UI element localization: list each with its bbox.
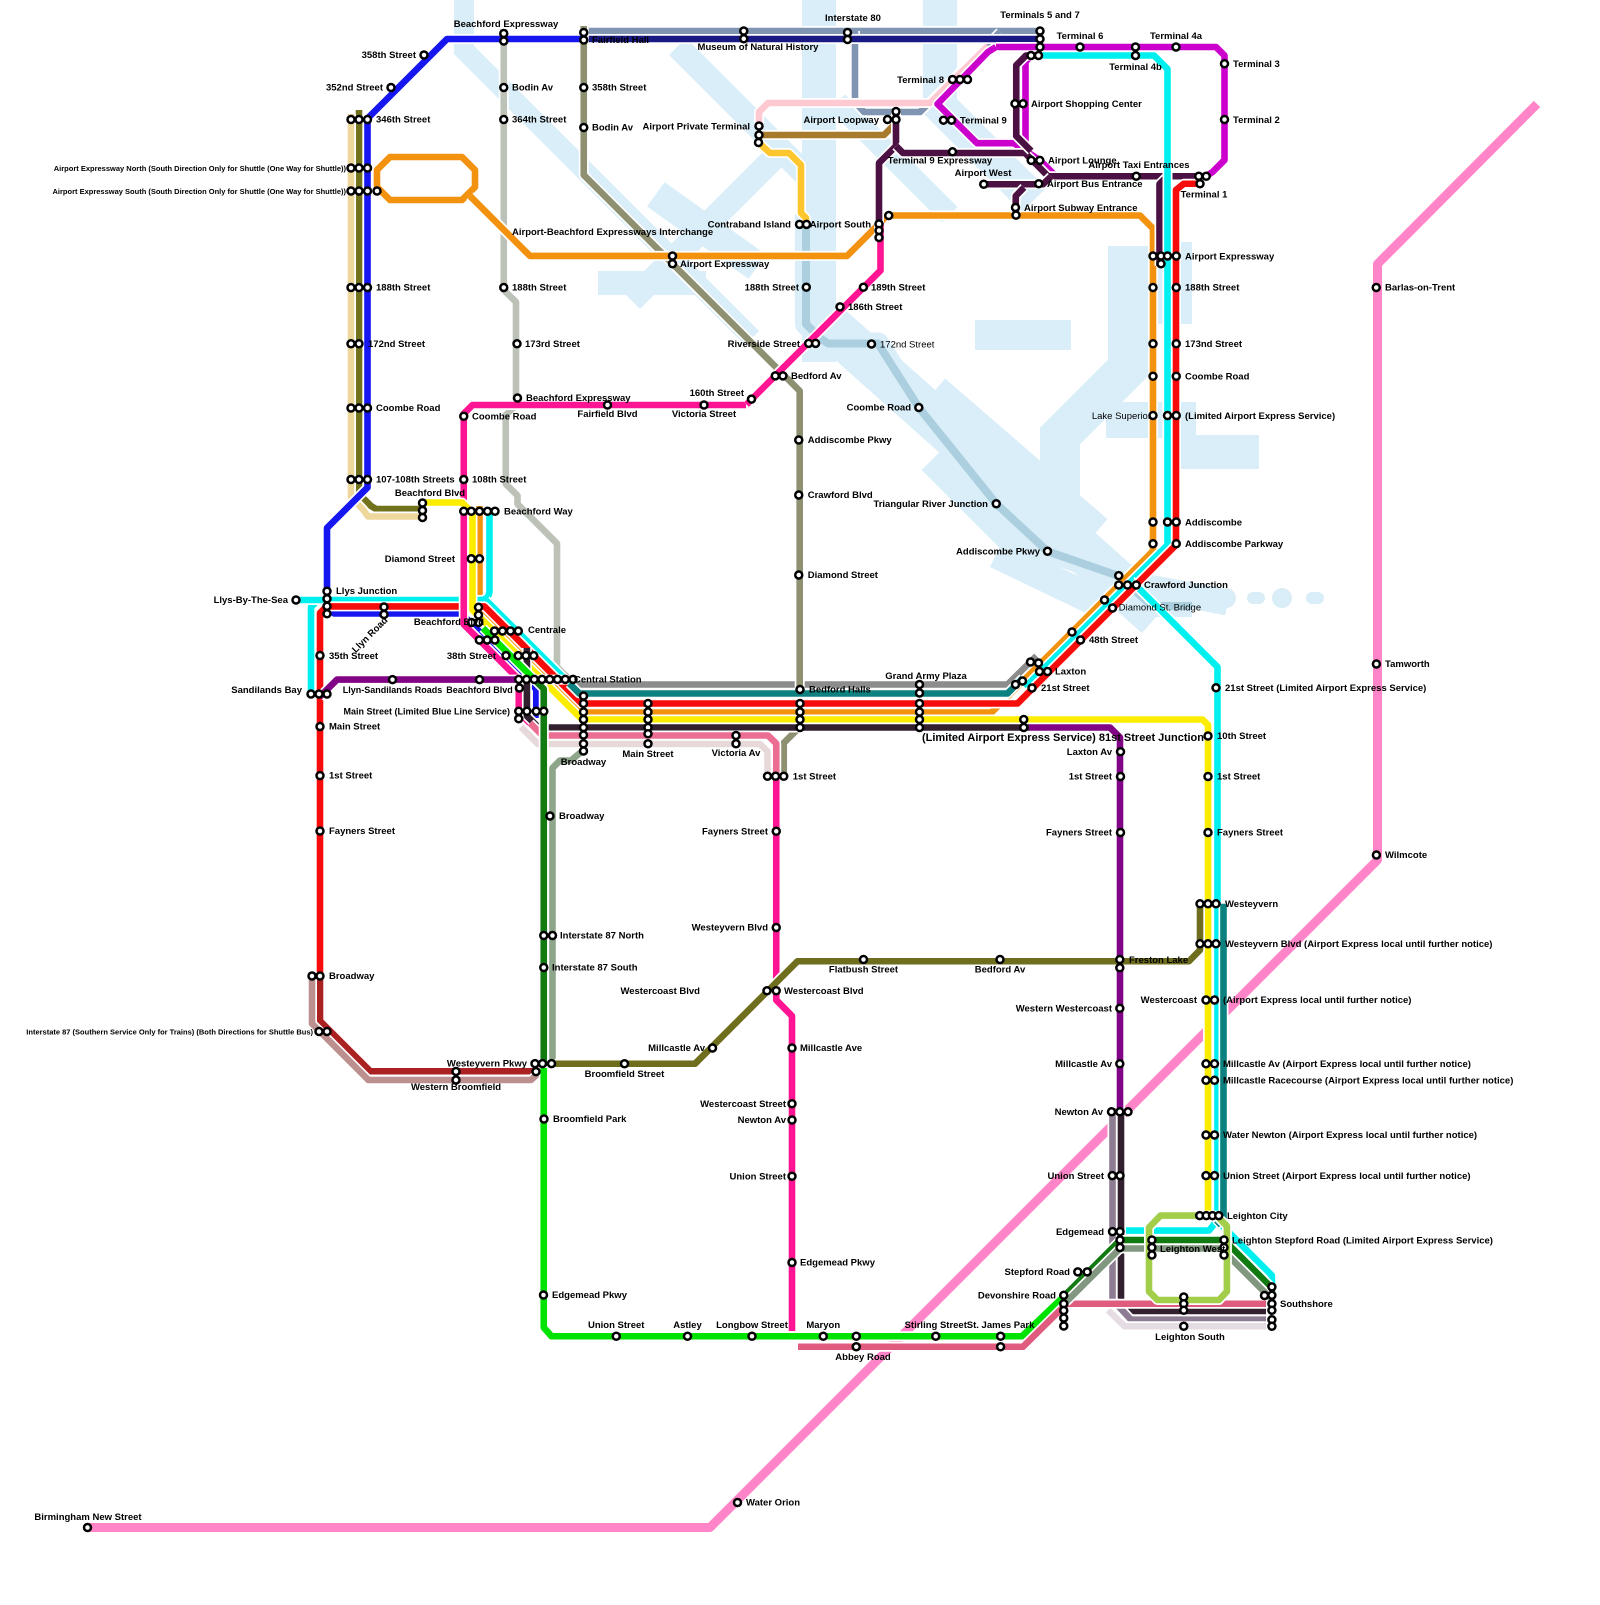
svg-text:Flatbush Street: Flatbush Street (829, 965, 899, 976)
svg-text:Coombe Road: Coombe Road (376, 403, 441, 414)
svg-text:21st Street (Limited Airport E: 21st Street (Limited Airport Express Ser… (1225, 683, 1426, 694)
svg-text:173nd Street: 173nd Street (1185, 339, 1243, 350)
svg-text:Barlas-on-Trent: Barlas-on-Trent (1385, 283, 1456, 294)
svg-text:Airport Bus Entrance: Airport Bus Entrance (1047, 179, 1143, 190)
svg-text:Interstate 80: Interstate 80 (825, 13, 881, 24)
svg-text:Bodin Av: Bodin Av (512, 83, 554, 94)
svg-text:Crawford Blvd: Crawford Blvd (808, 490, 873, 501)
svg-text:Millcastle Av: Millcastle Av (648, 1043, 706, 1054)
svg-text:Triangular River Junction: Triangular River Junction (873, 499, 988, 510)
svg-text:1st Street: 1st Street (329, 771, 373, 782)
svg-text:Wilmcote: Wilmcote (1385, 850, 1427, 861)
svg-text:Beachford Expressway: Beachford Expressway (454, 19, 559, 30)
svg-text:Sandilands Bay: Sandilands Bay (231, 685, 302, 696)
svg-text:358th Street: 358th Street (362, 50, 417, 61)
svg-text:108th Street: 108th Street (472, 475, 527, 486)
svg-text:Broadway: Broadway (329, 971, 375, 982)
svg-text:48th Street: 48th Street (1089, 635, 1139, 646)
svg-text:10th Street: 10th Street (1217, 731, 1267, 742)
svg-text:Coombe Road: Coombe Road (847, 403, 912, 414)
svg-text:Interstate 87 North: Interstate 87 North (560, 931, 644, 942)
svg-text:Edgemead Pkwy: Edgemead Pkwy (552, 1290, 628, 1301)
svg-text:189th Street: 189th Street (871, 283, 926, 294)
svg-text:Union Street: Union Street (730, 1171, 787, 1182)
svg-text:21st Street: 21st Street (1041, 683, 1090, 694)
svg-text:172nd Street: 172nd Street (368, 339, 426, 350)
svg-text:Interstate 87 South: Interstate 87 South (552, 963, 638, 974)
svg-text:Terminal 1: Terminal 1 (1181, 190, 1229, 201)
svg-text:Museum of Natural History: Museum of Natural History (698, 42, 820, 53)
svg-text:Airport West: Airport West (955, 168, 1013, 179)
svg-text:107-108th Streets: 107-108th Streets (376, 475, 455, 486)
svg-text:Airport Expressway South (Sout: Airport Expressway South (South Directio… (53, 187, 347, 196)
svg-text:Airport Loopway: Airport Loopway (804, 115, 880, 126)
svg-text:Diamond St. Bridge: Diamond St. Bridge (1119, 603, 1201, 614)
svg-text:Westeyvern Blvd: Westeyvern Blvd (692, 923, 769, 934)
svg-text:Victoria Street: Victoria Street (672, 409, 737, 420)
svg-text:Bedford Halls: Bedford Halls (809, 685, 871, 696)
svg-text:Terminals 5 and 7: Terminals 5 and 7 (1000, 10, 1080, 21)
svg-text:Terminal 8: Terminal 8 (897, 75, 944, 86)
svg-text:Addiscombe Pkwy: Addiscombe Pkwy (808, 435, 893, 446)
svg-text:Interstate 87 (Southern Servic: Interstate 87 (Southern Service Only for… (26, 1028, 313, 1037)
svg-text:Fayners Street: Fayners Street (1217, 828, 1284, 839)
svg-text:Llys-By-The-Sea: Llys-By-The-Sea (214, 595, 289, 606)
svg-text:Contraband Island: Contraband Island (708, 220, 792, 231)
svg-text:358th Street: 358th Street (592, 83, 647, 94)
svg-text:Maryon: Maryon (806, 1320, 840, 1331)
svg-text:173rd Street: 173rd Street (525, 339, 581, 350)
svg-text:(Airport Express local until f: (Airport Express local until further not… (1223, 995, 1411, 1006)
svg-text:Longbow Street: Longbow Street (716, 1320, 789, 1331)
svg-text:Beachford Expressway: Beachford Expressway (526, 393, 631, 404)
svg-text:Terminal 3: Terminal 3 (1233, 59, 1280, 70)
svg-text:Fayners Street: Fayners Street (1046, 828, 1113, 839)
svg-text:38th Street: 38th Street (447, 651, 497, 662)
svg-text:188th Street: 188th Street (1185, 283, 1240, 294)
svg-text:Southshore: Southshore (1280, 1299, 1333, 1310)
svg-text:Airport Taxi Entrances: Airport Taxi Entrances (1088, 160, 1189, 171)
svg-text:1st Street: 1st Street (793, 771, 837, 782)
svg-text:Abbey Road: Abbey Road (835, 1352, 891, 1363)
svg-text:Birmingham New Street: Birmingham New Street (34, 1512, 142, 1523)
svg-text:Beachford Blvd: Beachford Blvd (395, 488, 465, 499)
svg-text:Coombe Road: Coombe Road (1185, 372, 1250, 383)
svg-text:Terminal 6: Terminal 6 (1057, 31, 1104, 42)
svg-text:Leighton Stepford Road (Limite: Leighton Stepford Road (Limited Airport … (1232, 1236, 1493, 1247)
svg-text:Fayners Street: Fayners Street (329, 826, 396, 837)
svg-text:Terminal 9 Expressway: Terminal 9 Expressway (888, 156, 993, 167)
svg-text:Diamond Street: Diamond Street (385, 554, 456, 565)
svg-text:Stepford Road: Stepford Road (1005, 1267, 1071, 1278)
svg-text:Crawford Junction: Crawford Junction (1144, 580, 1228, 591)
svg-text:Western Westercoast: Western Westercoast (1016, 1004, 1113, 1015)
svg-text:Beachford Way: Beachford Way (504, 507, 574, 518)
svg-text:Leighton City: Leighton City (1227, 1211, 1288, 1222)
svg-text:160th Street: 160th Street (690, 388, 745, 399)
svg-text:Laxton Av: Laxton Av (1067, 747, 1113, 758)
svg-text:Airport South: Airport South (810, 220, 871, 231)
svg-text:Victoria Av: Victoria Av (712, 748, 761, 759)
svg-text:188th Street: 188th Street (745, 283, 800, 294)
svg-text:Airport Shopping Center: Airport Shopping Center (1031, 99, 1142, 110)
svg-text:Newton Av: Newton Av (738, 1115, 787, 1126)
svg-text:Laxton: Laxton (1055, 667, 1086, 678)
svg-text:1st Street: 1st Street (1069, 772, 1113, 783)
svg-text:Union Street: Union Street (588, 1320, 645, 1331)
svg-text:Addiscombe: Addiscombe (1185, 518, 1242, 529)
svg-text:Edgemead: Edgemead (1056, 1227, 1104, 1238)
svg-text:Leighton West: Leighton West (1160, 1244, 1226, 1255)
svg-text:346th Street: 346th Street (376, 115, 431, 126)
svg-text:Llys Junction: Llys Junction (336, 586, 397, 597)
svg-text:Stirling Street: Stirling Street (905, 1320, 968, 1331)
svg-text:Bedford Av: Bedford Av (791, 371, 842, 382)
svg-text:Airport Expressway: Airport Expressway (680, 259, 770, 270)
svg-text:Addiscombe Parkway: Addiscombe Parkway (1185, 539, 1284, 550)
svg-text:Millcastle Racecourse (Airport: Millcastle Racecourse (Airport Express l… (1223, 1076, 1513, 1087)
svg-text:Diamond Street: Diamond Street (808, 570, 879, 581)
svg-text:Westeyvern: Westeyvern (1225, 899, 1278, 910)
svg-text:Devonshire Road: Devonshire Road (978, 1291, 1056, 1302)
svg-text:Astley: Astley (673, 1320, 702, 1331)
svg-text:Union Street: Union Street (1048, 1171, 1105, 1182)
svg-text:Westercoast Street: Westercoast Street (700, 1099, 787, 1110)
svg-text:Water Orion: Water Orion (746, 1498, 800, 1509)
svg-text:Terminal 4b: Terminal 4b (1109, 62, 1162, 73)
svg-text:Westeyvern Blvd (Airport Expre: Westeyvern Blvd (Airport Express local u… (1225, 939, 1492, 950)
svg-text:188th Street: 188th Street (376, 283, 431, 294)
svg-text:Airport-Beachford Expressways: Airport-Beachford Expressways Interchang… (512, 227, 713, 238)
svg-text:Riverside Street: Riverside Street (728, 339, 801, 350)
svg-text:Terminal 4a: Terminal 4a (1150, 31, 1203, 42)
svg-text:Millcastle Ave: Millcastle Ave (800, 1043, 862, 1054)
svg-text:Westercoast: Westercoast (1141, 995, 1198, 1006)
svg-text:Westercoast Blvd: Westercoast Blvd (784, 986, 864, 997)
svg-text:364th Street: 364th Street (512, 115, 567, 126)
svg-text:St. James Park: St. James Park (967, 1320, 1035, 1331)
svg-text:Leighton South: Leighton South (1155, 1332, 1225, 1343)
svg-text:Lake Superior: Lake Superior (1092, 411, 1151, 422)
svg-text:Main Street (Limited Blue Line: Main Street (Limited Blue Line Service) (343, 707, 510, 717)
svg-text:Grand Army Plaza: Grand Army Plaza (885, 671, 967, 682)
svg-text:Broomfield Park: Broomfield Park (553, 1114, 627, 1125)
svg-text:Fairfield Blvd: Fairfield Blvd (577, 409, 637, 420)
svg-text:Bedford Av: Bedford Av (975, 965, 1026, 976)
svg-text:Union Street (Airport Express: Union Street (Airport Express local unti… (1223, 1171, 1471, 1182)
svg-text:Freston Lake: Freston Lake (1129, 955, 1188, 966)
svg-text:188th Street: 188th Street (512, 283, 567, 294)
svg-text:Llyn-Sandilands Roads: Llyn-Sandilands Roads (343, 685, 443, 695)
svg-text:Airport Private Terminal: Airport Private Terminal (642, 122, 750, 133)
svg-text:Broomfield Street: Broomfield Street (585, 1069, 666, 1080)
svg-text:Airport Subway Entrance: Airport Subway Entrance (1024, 203, 1138, 214)
svg-text:1st Street: 1st Street (1217, 772, 1261, 783)
svg-text:172nd Street: 172nd Street (880, 340, 935, 351)
svg-text:Millcastle Av (Airport Express: Millcastle Av (Airport Express local unt… (1223, 1059, 1471, 1070)
svg-text:Centrale: Centrale (528, 625, 566, 636)
svg-text:(Limited Airport Express Servi: (Limited Airport Express Service) (1185, 411, 1335, 422)
svg-text:Bodin Av: Bodin Av (592, 123, 634, 134)
svg-text:Water Newton (Airport Express: Water Newton (Airport Express local unti… (1223, 1130, 1477, 1141)
svg-text:Fairfield Hall: Fairfield Hall (592, 35, 649, 46)
svg-text:Edgemead Pkwy: Edgemead Pkwy (800, 1258, 876, 1269)
svg-text:Central Station: Central Station (574, 675, 642, 686)
svg-text:Newton Av: Newton Av (1055, 1107, 1104, 1118)
svg-text:Westercoast Blvd: Westercoast Blvd (620, 986, 700, 997)
svg-text:186th Street: 186th Street (848, 302, 903, 313)
svg-text:35th Street: 35th Street (329, 651, 379, 662)
svg-text:Beachford Blvd: Beachford Blvd (446, 685, 513, 695)
svg-text:(Limited Airport Express Servi: (Limited Airport Express Service) 81st S… (922, 732, 1204, 744)
svg-text:Main Street: Main Street (329, 722, 381, 733)
svg-text:Beachford Blvd: Beachford Blvd (414, 617, 484, 628)
svg-text:Airport Expressway: Airport Expressway (1185, 252, 1275, 263)
svg-text:Main Street: Main Street (622, 749, 674, 760)
svg-text:Terminal 9: Terminal 9 (960, 116, 1007, 127)
svg-text:Westeyvern Pkwy: Westeyvern Pkwy (447, 1059, 528, 1070)
svg-text:Tamworth: Tamworth (1385, 659, 1430, 670)
svg-text:352nd Street: 352nd Street (326, 83, 384, 94)
svg-text:Fayners Street: Fayners Street (702, 826, 769, 837)
svg-text:Western Broomfield: Western Broomfield (411, 1082, 501, 1093)
svg-text:Airport Expressway North (Sout: Airport Expressway North (South Directio… (54, 164, 347, 173)
svg-text:Addiscombe Pkwy: Addiscombe Pkwy (956, 546, 1041, 557)
svg-text:Broadway: Broadway (559, 811, 605, 822)
svg-text:Terminal 2: Terminal 2 (1233, 115, 1280, 126)
svg-text:Broadway: Broadway (561, 757, 607, 768)
svg-text:Coombe Road: Coombe Road (472, 412, 537, 423)
svg-text:Millcastle Av: Millcastle Av (1055, 1059, 1113, 1070)
